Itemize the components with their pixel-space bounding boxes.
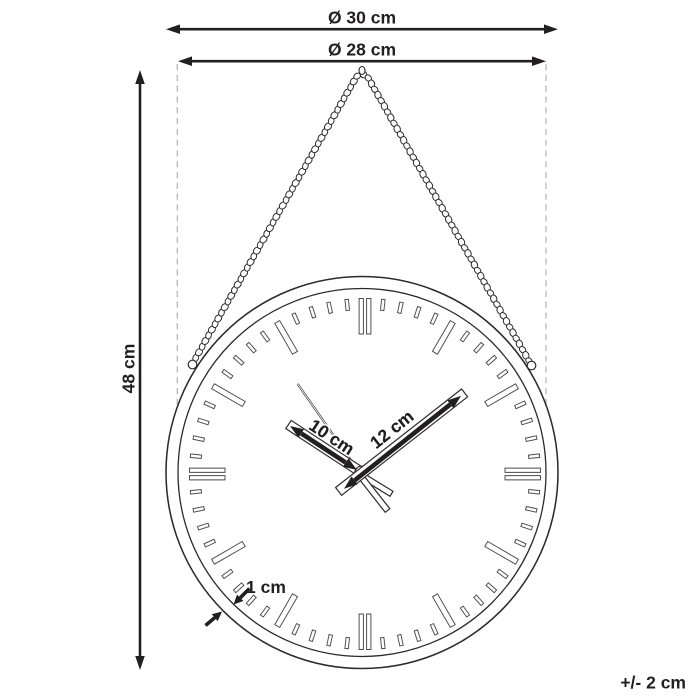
svg-text:48 cm: 48 cm [119, 344, 139, 394]
svg-text:Ø 30 cm: Ø 30 cm [328, 8, 396, 28]
svg-text:1 cm: 1 cm [246, 577, 286, 597]
svg-text:Ø 28 cm: Ø 28 cm [328, 40, 396, 60]
svg-text:+/- 2 cm: +/- 2 cm [620, 673, 686, 693]
